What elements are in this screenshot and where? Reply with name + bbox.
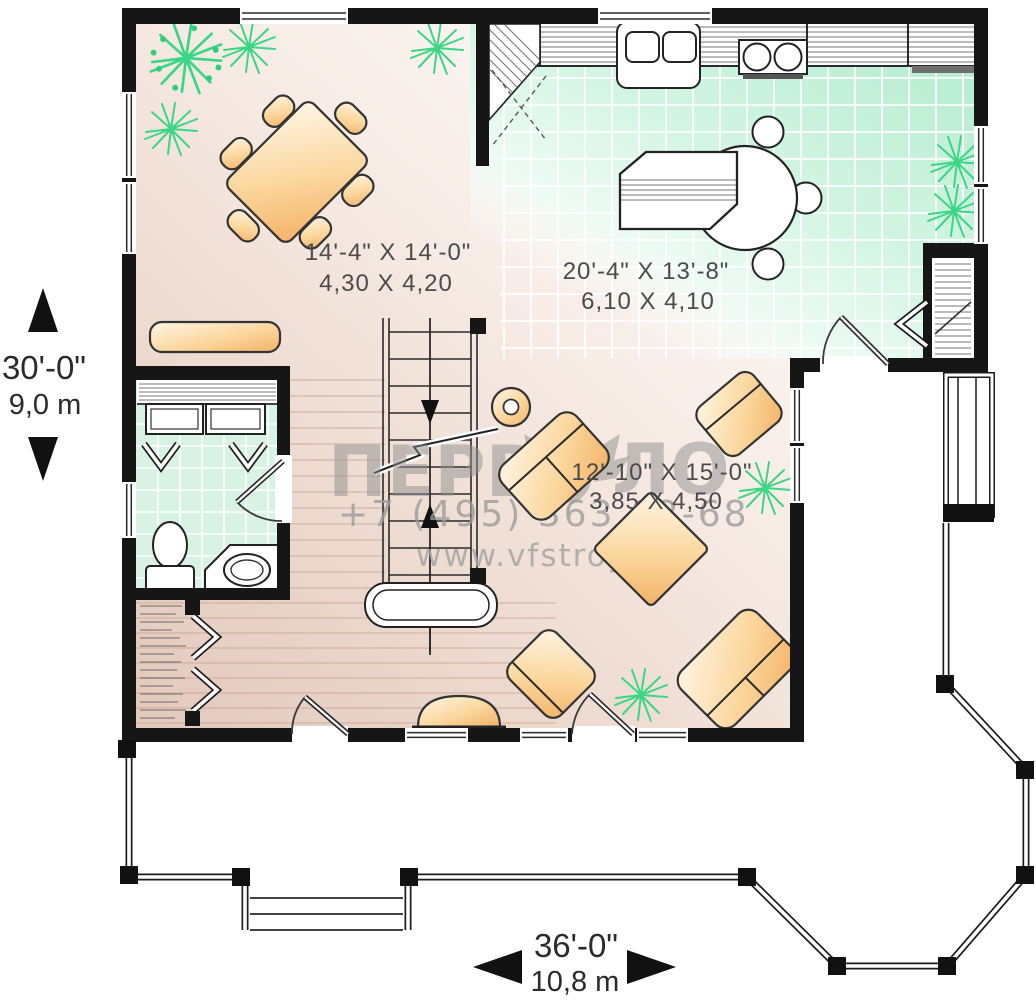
dimension-arrow-up-icon	[28, 288, 58, 332]
kitchen-label-metric: 6,10 X 4,10	[581, 288, 715, 315]
porch-post	[938, 957, 956, 975]
window	[974, 187, 988, 244]
window	[790, 388, 804, 443]
stair-post	[470, 318, 486, 334]
window	[790, 446, 804, 503]
burner-icon	[744, 44, 771, 71]
floor-plan-page: ПЕРВЗ ЛО +7 (495) 363 62-68 www.vfstroy.…	[0, 0, 1036, 1000]
closet-stub-wall	[185, 711, 200, 726]
entry-door-opening	[820, 356, 888, 374]
height-dimension-imperial: 30'-0"	[2, 349, 86, 386]
stair-post	[470, 568, 486, 584]
width-dimension-imperial: 36'-0"	[534, 927, 618, 964]
window	[405, 728, 468, 742]
window	[122, 182, 136, 254]
oven-handle	[743, 74, 803, 79]
width-dimension-metric: 10,8 m	[531, 966, 620, 998]
porch-post	[1016, 866, 1034, 884]
porch-post	[738, 868, 756, 886]
pantry-wall	[476, 8, 489, 166]
sink-bowl-left	[626, 32, 659, 62]
porch-post	[118, 740, 136, 758]
floor-plan: ПЕРВЗ ЛО +7 (495) 363 62-68 www.vfstroy.…	[0, 0, 1036, 1000]
stool	[753, 117, 784, 148]
window	[122, 482, 136, 538]
burner-icon	[775, 44, 802, 71]
dimension-arrow-left-icon	[473, 950, 522, 984]
porch-post	[1016, 761, 1034, 779]
kitchen-counter	[489, 22, 974, 66]
window	[122, 92, 136, 178]
kitchen-label-imperial: 20'-4" X 13'-8"	[563, 258, 730, 285]
closet-stub-wall	[185, 600, 200, 615]
living-label-metric: 3,85 X 4,50	[589, 488, 723, 515]
window	[637, 728, 688, 742]
stool	[753, 249, 784, 280]
dimension-arrow-down-icon	[28, 437, 58, 481]
bathroom-wall-bottom	[122, 588, 290, 600]
entry-closet	[932, 258, 974, 358]
dimension-arrow-right-icon	[627, 950, 676, 984]
window	[598, 8, 712, 24]
porch-post	[828, 957, 846, 975]
entry-wall	[790, 358, 988, 372]
stoop-step	[943, 504, 994, 522]
toilet-bowl	[153, 522, 187, 568]
side-table-center	[504, 400, 519, 415]
dining-label-imperial: 14'-4" X 14'-0"	[305, 239, 472, 266]
entry-closet-box	[932, 258, 974, 358]
bathroom-wall-top	[122, 366, 290, 380]
porch-post	[936, 675, 954, 693]
window	[974, 126, 988, 184]
front-steps	[245, 877, 408, 930]
window	[240, 8, 348, 24]
window	[520, 728, 568, 742]
closet-wall-top	[923, 243, 988, 258]
porch-post	[400, 868, 418, 886]
bench	[150, 322, 280, 352]
porch-post	[120, 866, 138, 884]
living-label-imperial: 12'-10" X 15'-0"	[572, 459, 753, 486]
height-dimension-metric: 9,0 m	[9, 389, 82, 421]
porch-post	[232, 868, 250, 886]
sink-bowl-right	[663, 32, 696, 62]
dining-label-metric: 4,30 X 4,20	[319, 270, 453, 297]
entry-stoop	[943, 375, 994, 522]
counter-ledge	[912, 66, 977, 73]
